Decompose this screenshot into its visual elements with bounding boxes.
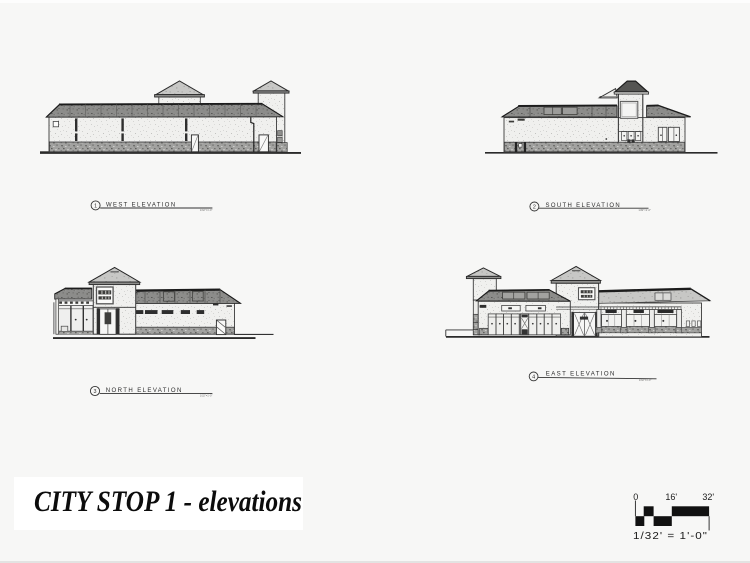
svg-text:1/32' = 1'-0": 1/32' = 1'-0"	[633, 531, 708, 542]
svg-text:1/32"=1'-0": 1/32"=1'-0"	[200, 394, 213, 398]
svg-text:1/32"=1'-0": 1/32"=1'-0"	[200, 208, 213, 212]
svg-text:4: 4	[532, 374, 535, 380]
svg-text:EAST ELEVATION: EAST ELEVATION	[546, 370, 616, 377]
svg-text:3: 3	[94, 389, 97, 395]
svg-text:32': 32'	[702, 492, 714, 502]
svg-text:1/32"=1'-0": 1/32"=1'-0"	[639, 378, 652, 382]
svg-text:1: 1	[94, 203, 97, 209]
svg-text:1/32"=1'-0": 1/32"=1'-0"	[639, 208, 652, 212]
svg-text:2: 2	[533, 205, 536, 211]
svg-text:16': 16'	[665, 492, 677, 502]
svg-text:CITY STOP 1 - elevations: CITY STOP 1 - elevations	[34, 486, 302, 518]
